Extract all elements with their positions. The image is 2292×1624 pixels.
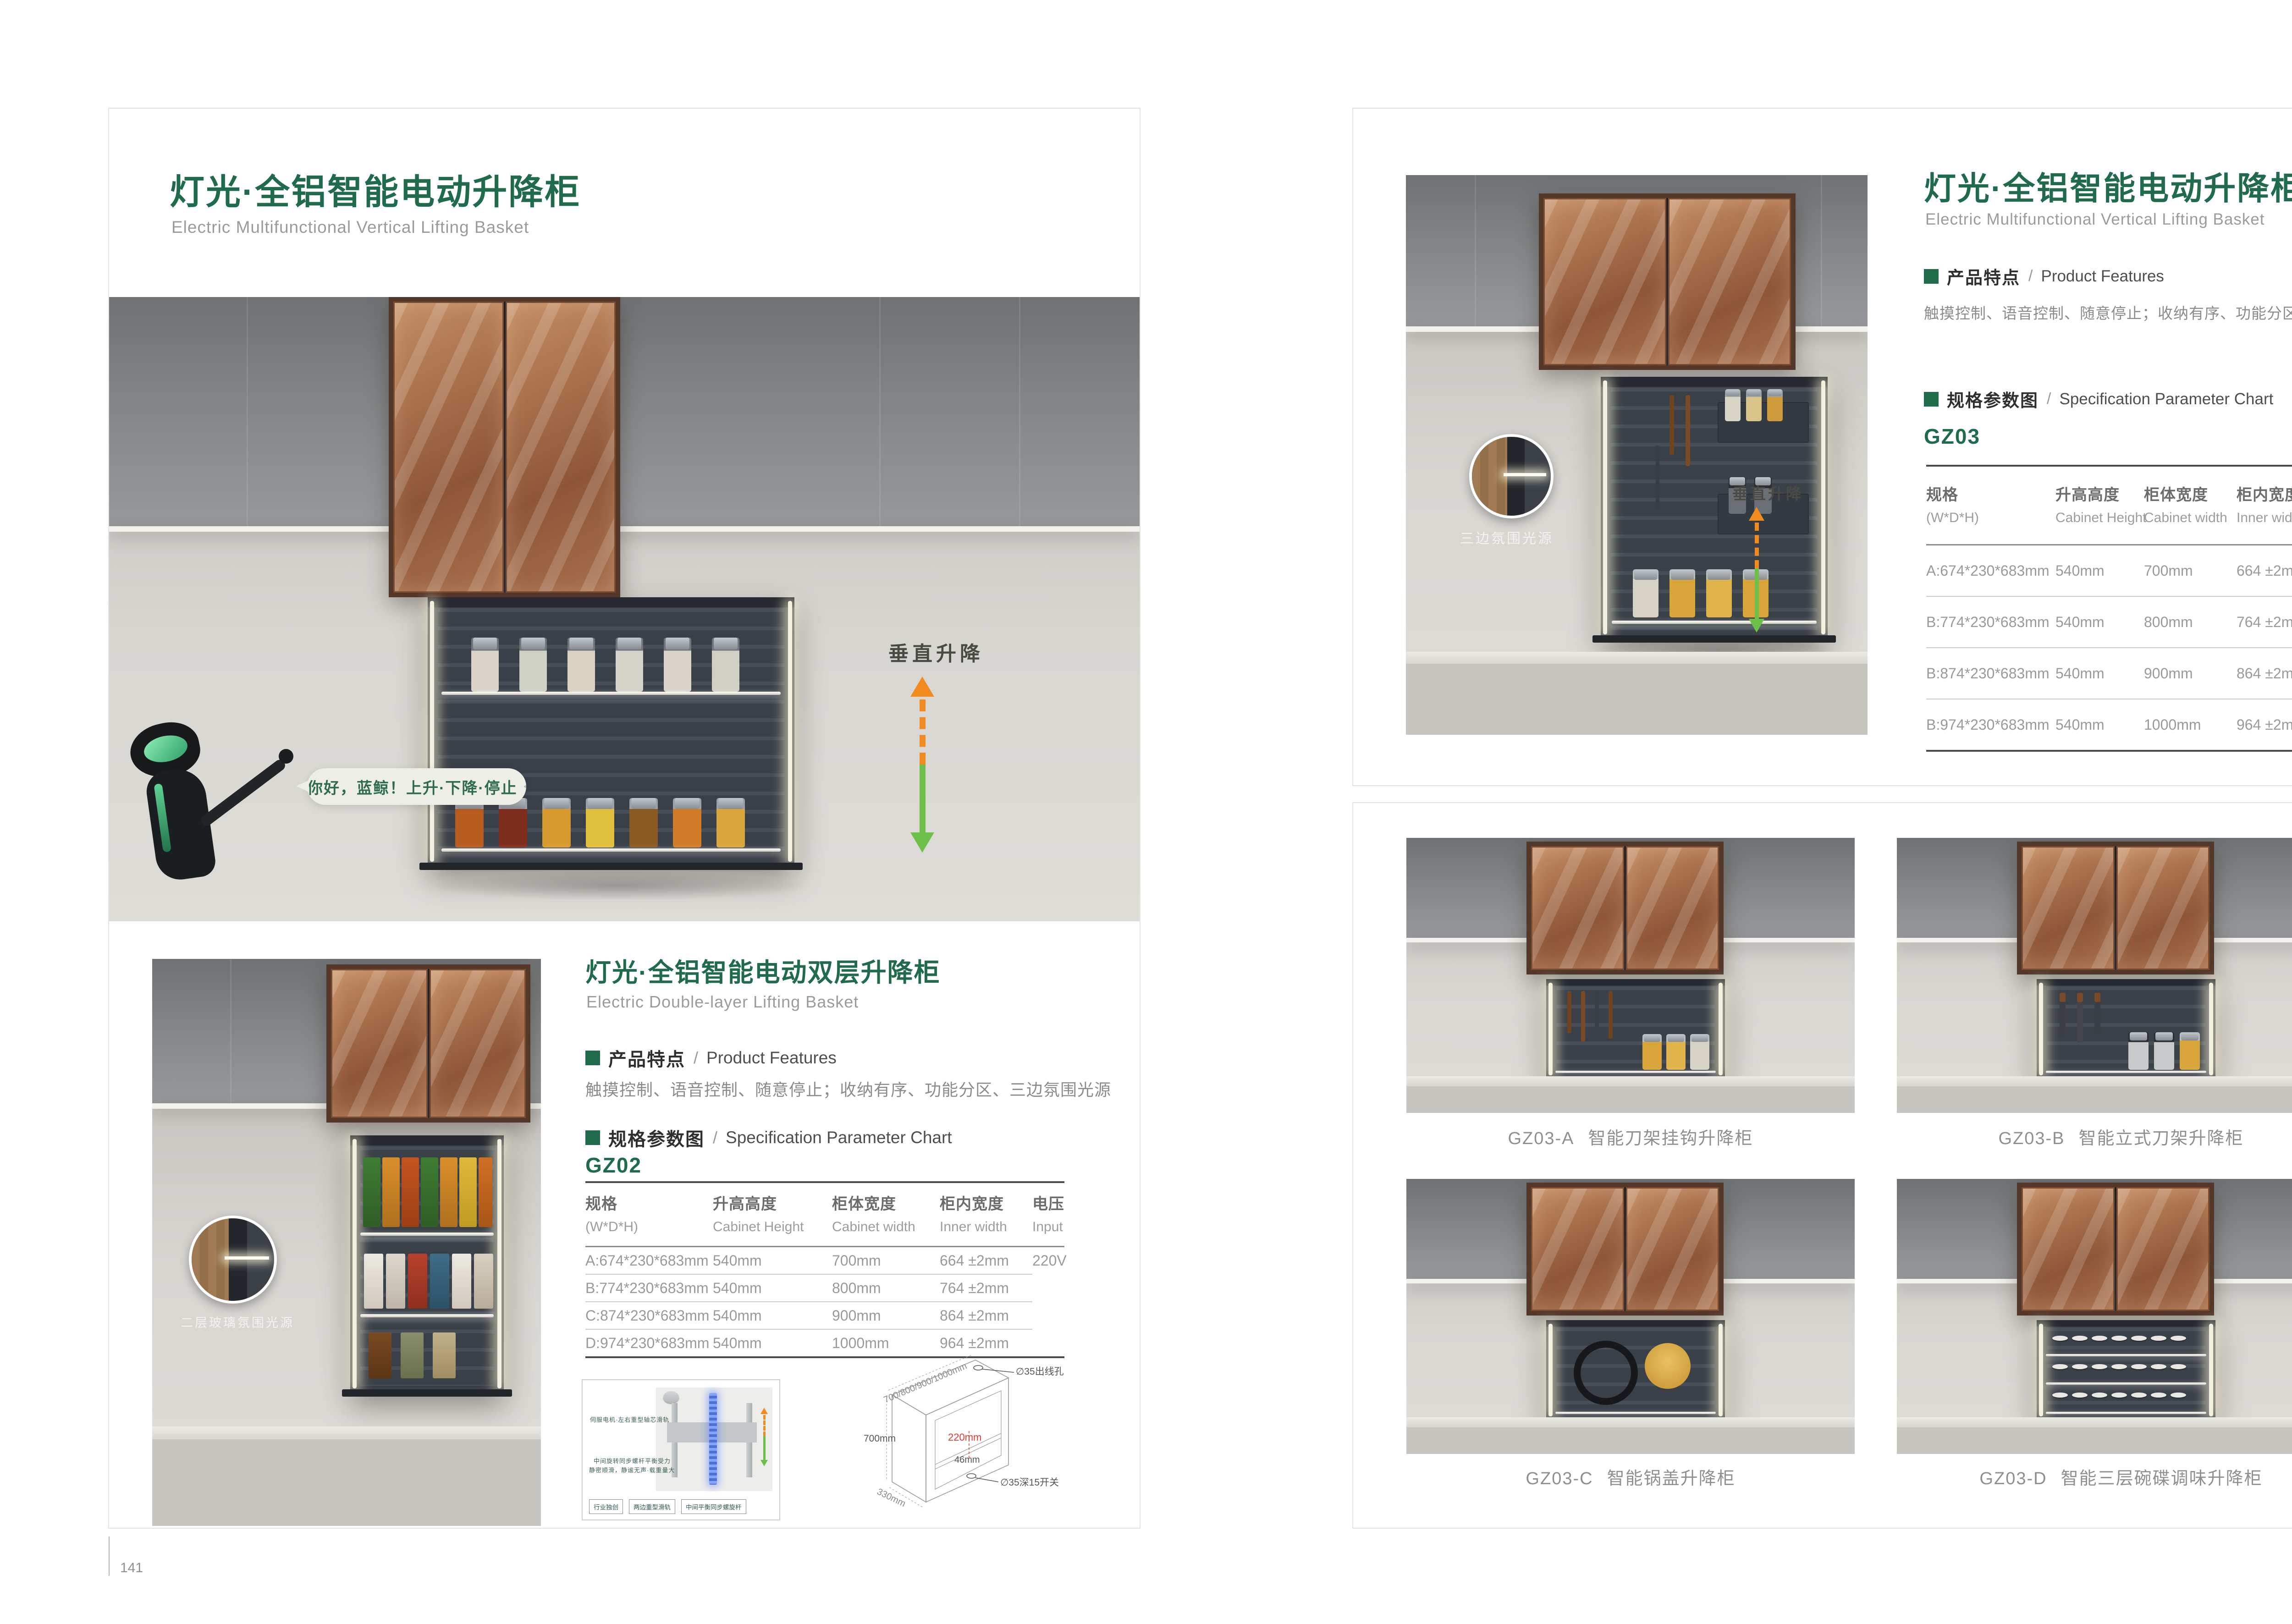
glass-door-right bbox=[2116, 1187, 2209, 1311]
spice-jar bbox=[1725, 389, 1741, 421]
lifting-rack bbox=[2037, 1320, 2215, 1420]
robot-visor bbox=[142, 732, 190, 766]
dim-width-range: 700/800/900/1000mm bbox=[882, 1361, 969, 1405]
juice-carton bbox=[479, 1157, 492, 1227]
cell: 664 ±2mm bbox=[2237, 545, 2292, 596]
rack-top-rail bbox=[2037, 979, 2215, 985]
juice-carton bbox=[363, 1157, 380, 1227]
table-bottom-border bbox=[1926, 750, 2292, 752]
model-code: GZ03 bbox=[1924, 424, 1980, 449]
photo-callout-label: 二层玻璃氛围光源 bbox=[181, 1313, 294, 1331]
light-strip-left bbox=[1603, 380, 1607, 634]
mechanism-note-1: 伺服电机·左右重型轴芯滑轨 bbox=[590, 1415, 669, 1424]
arrow-dashed-line bbox=[1755, 523, 1759, 568]
rack-base bbox=[1592, 635, 1836, 643]
lifting-rack bbox=[428, 597, 794, 865]
bronze-glass-cabinet bbox=[1526, 842, 1724, 974]
tag: 行业独创 bbox=[589, 1499, 623, 1514]
cell: 800mm bbox=[832, 1275, 940, 1301]
bronze-glass-cabinet bbox=[1526, 1183, 1724, 1316]
countertop bbox=[1897, 1076, 2292, 1113]
product-image-gz03d bbox=[1897, 1179, 2292, 1454]
light-strip-left bbox=[2039, 983, 2043, 1075]
pasta-jar bbox=[1669, 569, 1695, 617]
col-header: 升高高度Cabinet Height bbox=[713, 1183, 832, 1246]
cabinet-seam bbox=[230, 959, 231, 1103]
hanging-knife bbox=[1656, 446, 1659, 510]
glass-shelf bbox=[2046, 1412, 2206, 1414]
right-page-top: 三边氛围光源 垂直升降 灯光·全铝智能电动升降柜 Electric Multif… bbox=[1352, 108, 2292, 786]
glass-door-left bbox=[2022, 1187, 2115, 1311]
spec-heading-zh: 规格参数图 bbox=[1947, 386, 2039, 412]
light-strip-right bbox=[2209, 1324, 2213, 1416]
lift-arrows bbox=[910, 677, 934, 853]
cell: 700mm bbox=[832, 1247, 940, 1274]
milk-carton bbox=[452, 1254, 471, 1309]
light-strip-right bbox=[1821, 380, 1825, 634]
col-header: 柜体宽度Cabinet width bbox=[832, 1183, 940, 1246]
mechanism-note-2a: 中间旋转同步螺杆平衡受力 bbox=[594, 1456, 671, 1465]
robot-hand bbox=[279, 749, 293, 764]
cabinet-seam bbox=[247, 297, 248, 526]
spec-heading: 规格参数图 / Specification Parameter Chart bbox=[1924, 386, 2273, 412]
light-strip-right bbox=[497, 1139, 501, 1388]
dim-switch-hole: ∅35深15开关 bbox=[1000, 1477, 1059, 1488]
base-cabinets bbox=[1897, 1427, 2292, 1454]
arrow-solid-line bbox=[920, 765, 926, 832]
steel-canister bbox=[2154, 1032, 2174, 1070]
col-header: 柜内宽度Inner width bbox=[2237, 467, 2292, 544]
top-plate bbox=[663, 1391, 679, 1403]
sound-waves-icon bbox=[524, 777, 526, 796]
base-cabinets bbox=[1406, 1427, 1855, 1454]
ingredient-jar bbox=[499, 798, 527, 848]
glass-shelf bbox=[441, 692, 781, 695]
tag: 两边重型滑轨 bbox=[629, 1499, 675, 1514]
counter-surface bbox=[152, 1426, 541, 1439]
mini-lift-arrows bbox=[760, 1408, 768, 1466]
vertical-lift-label: 垂直升降 bbox=[888, 637, 984, 666]
detail-magnifier-circle bbox=[189, 1216, 277, 1304]
glass-shelf bbox=[360, 1233, 494, 1236]
slash: / bbox=[2028, 267, 2033, 285]
cell: 864 ±2mm bbox=[940, 1302, 1032, 1329]
ingredient-jar bbox=[455, 798, 484, 848]
juice-carton bbox=[440, 1157, 457, 1227]
spec-heading-en: Specification Parameter Chart bbox=[726, 1128, 952, 1147]
bronze-glass-cabinet bbox=[2017, 842, 2214, 974]
hero-image: 三边氛围光源 垂直升降 bbox=[1406, 175, 1868, 735]
page-subtitle: Electric Multifunctional Vertical Liftin… bbox=[1925, 210, 2265, 229]
rack-top-rail bbox=[350, 1135, 504, 1145]
model-code: GZ02 bbox=[585, 1153, 642, 1178]
product-code: GZ03-D bbox=[1979, 1469, 2047, 1488]
cell: 800mm bbox=[2144, 597, 2237, 647]
cell: 540mm bbox=[2055, 597, 2144, 647]
glass-door-left bbox=[1531, 846, 1624, 970]
double-layer-product-photo: 二层玻璃氛围光源 bbox=[152, 959, 541, 1526]
cell: C:874*230*683mm bbox=[585, 1302, 713, 1329]
arrow-down-icon bbox=[910, 832, 934, 853]
knife-blade bbox=[2060, 1002, 2066, 1038]
dim-offset: 46mm bbox=[954, 1455, 980, 1465]
light-strip-right bbox=[788, 601, 792, 862]
slash: / bbox=[694, 1048, 698, 1068]
ingredient-jar bbox=[629, 798, 658, 848]
arrow-up-icon bbox=[910, 677, 934, 697]
wood-panel-detail bbox=[1472, 437, 1507, 516]
section-title: 灯光·全铝智能电动双层升降柜 bbox=[585, 952, 941, 989]
pasta-jar bbox=[1706, 569, 1732, 617]
light-strip-right bbox=[2209, 983, 2213, 1075]
cell: B:774*230*683mm bbox=[1926, 597, 2055, 647]
light-strip-right bbox=[1719, 983, 1723, 1075]
voice-speech-bubble: 你好，蓝鲸！上升·下降·停止 bbox=[307, 768, 526, 805]
page-title: 灯光·全铝智能电动升降柜 bbox=[1924, 163, 2292, 209]
cell: 864 ±2mm bbox=[2237, 648, 2292, 699]
ingredient-jar bbox=[542, 798, 571, 848]
ingredient-jar bbox=[586, 798, 614, 848]
spec-heading-en: Specification Parameter Chart bbox=[2059, 390, 2273, 408]
features-heading-en: Product Features bbox=[706, 1048, 837, 1068]
arrow-dashed-line bbox=[920, 699, 926, 765]
mechanism-note-2b: 静密顺滑，静谧无声·载重量大 bbox=[589, 1465, 675, 1474]
spec-table-gz03: 规格(W*D*H) 升高高度Cabinet Height 柜体宽度Cabinet… bbox=[1926, 465, 2292, 752]
glass-door-right bbox=[430, 969, 526, 1118]
dim-top-hole: ∅35出线孔 bbox=[1016, 1366, 1064, 1377]
cell: 700mm bbox=[2144, 545, 2237, 596]
spec-table-gz02: 规格(W*D*H) 升高高度Cabinet Height 柜体宽度Cabinet… bbox=[585, 1181, 1064, 1358]
product-caption-gz03b: GZ03-B智能立式刀架升降柜 bbox=[1897, 1124, 2292, 1149]
counter-surface bbox=[1897, 1076, 2292, 1086]
knife-handle bbox=[2094, 993, 2100, 1002]
left-page: 灯光·全铝智能电动升降柜 Electric Multifunctional Ve… bbox=[108, 108, 1140, 1529]
slash: / bbox=[2047, 390, 2051, 408]
col-header: 柜体宽度Cabinet width bbox=[2144, 467, 2237, 544]
product-name: 智能立式刀架升降柜 bbox=[2079, 1129, 2244, 1148]
rack-top-rail bbox=[1601, 377, 1828, 387]
features-heading-zh: 产品特点 bbox=[1947, 264, 2020, 289]
col-header: 电压Input bbox=[1032, 1183, 1064, 1246]
glass-door-left bbox=[393, 302, 504, 593]
glass-shelf bbox=[1612, 621, 1817, 624]
base-cabinets bbox=[152, 1439, 541, 1526]
countertop bbox=[1897, 1417, 2292, 1454]
robot-accent bbox=[154, 783, 171, 853]
rack-top-rail bbox=[1546, 979, 1725, 985]
product-code: GZ03-B bbox=[1998, 1129, 2065, 1148]
right-page-bottom: GZ03-A智能刀架挂钩升降柜 bbox=[1352, 802, 2292, 1529]
glass-door-right bbox=[1626, 1187, 1719, 1311]
glass-door-right bbox=[2116, 846, 2209, 970]
rack-top-rail bbox=[428, 597, 794, 607]
spec-heading: 规格参数图 / Specification Parameter Chart bbox=[585, 1124, 952, 1151]
green-square-bullet bbox=[1924, 392, 1939, 407]
cabinet-seam bbox=[1821, 175, 1822, 326]
mechanism-tags: 行业独创 两边重型滑轨 中间平衡同步螺旋杆 bbox=[589, 1499, 746, 1514]
arrow-up-icon bbox=[760, 1408, 768, 1414]
product-code: GZ03-C bbox=[1526, 1469, 1593, 1488]
features-heading-en: Product Features bbox=[2041, 267, 2164, 286]
hanging-knife bbox=[1595, 991, 1599, 1028]
glass-shelf bbox=[2046, 1382, 2206, 1385]
spice-jar bbox=[712, 638, 739, 692]
pasta-jar bbox=[1633, 569, 1658, 617]
countertop bbox=[1406, 1417, 1855, 1454]
hanging-utensil bbox=[1581, 991, 1585, 1041]
bottle bbox=[433, 1332, 456, 1378]
light-strip-detail bbox=[225, 1256, 269, 1260]
glass-door-left bbox=[1531, 1187, 1624, 1311]
section-subtitle: Electric Double-layer Lifting Basket bbox=[586, 992, 859, 1012]
cell bbox=[1032, 1275, 1064, 1301]
cell: 540mm bbox=[713, 1275, 832, 1301]
plate-row bbox=[2052, 1393, 2186, 1398]
glass-shelf bbox=[2046, 1354, 2206, 1356]
lifting-rack bbox=[1601, 377, 1828, 638]
milk-carton bbox=[364, 1254, 383, 1309]
tag: 中间平衡同步螺旋杆 bbox=[681, 1499, 746, 1514]
col-header: 规格(W*D*H) bbox=[585, 1183, 713, 1246]
cabinet-seam bbox=[879, 297, 881, 526]
glass-shelf bbox=[1555, 1412, 1716, 1414]
juice-carton bbox=[402, 1157, 419, 1227]
product-image-gz03c bbox=[1406, 1179, 1855, 1454]
page-title: 灯光·全铝智能电动升降柜 bbox=[170, 164, 581, 214]
bottle bbox=[369, 1332, 391, 1378]
pasta-jar bbox=[2180, 1032, 2200, 1070]
double-layer-rack bbox=[350, 1135, 504, 1392]
countertop bbox=[152, 1426, 541, 1526]
plate-row bbox=[2052, 1364, 2186, 1369]
hero-image: 你好，蓝鲸！上升·下降·停止 垂直升降 bbox=[109, 297, 1140, 921]
plate-row bbox=[2052, 1336, 2186, 1341]
robot-arm bbox=[198, 758, 287, 828]
upper-cabinets bbox=[109, 297, 1140, 526]
lifting-rack bbox=[1546, 1320, 1725, 1420]
base-cabinets bbox=[1406, 1086, 1855, 1113]
product-name: 智能锅盖升降柜 bbox=[1607, 1469, 1736, 1488]
dim-inner: 220mm bbox=[948, 1431, 981, 1443]
features-text: 触摸控制、语音控制、随意停止；收纳有序、功能分区、三边氛围光源 bbox=[585, 1077, 1111, 1101]
detail-magnifier-circle bbox=[1469, 434, 1554, 518]
bronze-glass-cabinet bbox=[1539, 193, 1796, 370]
cell: 764 ±2mm bbox=[2237, 597, 2292, 647]
bronze-glass-cabinet bbox=[326, 964, 530, 1123]
spice-jar bbox=[616, 638, 643, 692]
cell: 964 ±2mm bbox=[2237, 699, 2292, 750]
light-strip-left bbox=[1548, 983, 1553, 1075]
product-caption-gz03c: GZ03-C智能锅盖升降柜 bbox=[1406, 1464, 1855, 1489]
counter-surface bbox=[1406, 1076, 1855, 1086]
cell: A:674*230*683mm bbox=[1926, 545, 2055, 596]
knife-blade bbox=[2094, 1002, 2100, 1034]
col-header: 规格(W*D*H) bbox=[1926, 467, 2055, 544]
spice-jar bbox=[519, 638, 547, 692]
light-strip-left bbox=[353, 1139, 357, 1388]
light-strip-right bbox=[1719, 1324, 1723, 1416]
product-name: 智能刀架挂钩升降柜 bbox=[1588, 1129, 1753, 1148]
juice-carton bbox=[382, 1157, 400, 1227]
light-strip-left bbox=[1548, 1324, 1553, 1416]
spice-jar bbox=[471, 638, 499, 692]
glass-door-right bbox=[1626, 846, 1719, 970]
ingredient-jar bbox=[673, 798, 701, 848]
lift-arrows bbox=[1749, 507, 1764, 633]
glass-shelf bbox=[2046, 1071, 2206, 1073]
cell: B:974*230*683mm bbox=[1926, 699, 2055, 750]
rack-shadow bbox=[412, 870, 824, 902]
juice-carton bbox=[421, 1157, 438, 1227]
product-caption-gz03d: GZ03-D智能三层碗碟调味升降柜 bbox=[1897, 1464, 2292, 1489]
cell: 540mm bbox=[2055, 648, 2144, 699]
bronze-glass-cabinet bbox=[2017, 1183, 2214, 1316]
wood-panel-detail bbox=[192, 1218, 229, 1301]
col-header: 柜内宽度Inner width bbox=[940, 1183, 1032, 1246]
glass-shelf bbox=[441, 848, 781, 852]
product-image-gz03a bbox=[1406, 838, 1855, 1113]
arrow-dashed-line bbox=[763, 1415, 766, 1436]
cabinet-seam bbox=[1475, 175, 1476, 326]
glass-door-left bbox=[331, 969, 428, 1118]
knife-handle bbox=[2077, 993, 2083, 1002]
green-square-bullet bbox=[585, 1051, 600, 1065]
countertop bbox=[1406, 1076, 1855, 1113]
bronze-glass-cabinet bbox=[389, 297, 620, 597]
synchronous-screw bbox=[709, 1393, 717, 1485]
hero-callout-label: 三边氛围光源 bbox=[1460, 527, 1554, 547]
glass-shelf bbox=[1555, 1071, 1716, 1073]
arrow-up-icon bbox=[1749, 507, 1764, 521]
spice-jar bbox=[1746, 389, 1762, 421]
light-strip-detail bbox=[1504, 473, 1546, 476]
spice-bin bbox=[1718, 402, 1809, 443]
rack-top-rail bbox=[2037, 1320, 2215, 1327]
rack-base bbox=[419, 863, 803, 870]
dim-height: 700mm bbox=[864, 1433, 896, 1444]
milk-carton bbox=[430, 1254, 449, 1309]
cell: A:674*230*683mm bbox=[585, 1247, 713, 1274]
col-header: 升高高度Cabinet Height bbox=[2055, 467, 2144, 544]
vertical-lift-label: 垂直升降 bbox=[1732, 481, 1804, 504]
product-image-gz03b bbox=[1897, 838, 2292, 1113]
pasta-jar bbox=[1642, 1034, 1662, 1070]
hanging-utensil bbox=[1567, 991, 1571, 1033]
cell: 540mm bbox=[713, 1330, 832, 1356]
counter-surface bbox=[1897, 1417, 2292, 1427]
under-cabinet-light bbox=[109, 526, 1140, 532]
light-strip-left bbox=[2039, 1324, 2043, 1416]
rack-top-rail bbox=[1546, 1320, 1725, 1327]
glass-door-left bbox=[1543, 198, 1666, 365]
rack-base bbox=[342, 1389, 512, 1397]
features-heading-zh: 产品特点 bbox=[608, 1045, 685, 1071]
spice-jar bbox=[1767, 389, 1783, 421]
slash: / bbox=[713, 1128, 717, 1147]
cell: 664 ±2mm bbox=[940, 1247, 1032, 1274]
gold-pan-lid bbox=[1645, 1343, 1691, 1389]
voice-command-text: 你好，蓝鲸！上升·下降·停止 bbox=[307, 776, 518, 798]
cell: B:874*230*683mm bbox=[1926, 648, 2055, 699]
hanging-utensil bbox=[1609, 991, 1613, 1039]
hanging-spatula bbox=[1669, 395, 1674, 455]
lifting-rack bbox=[1546, 979, 1725, 1079]
features-heading: 产品特点 / Product Features bbox=[585, 1045, 837, 1071]
knife-blade bbox=[2077, 1002, 2083, 1042]
base-cabinets bbox=[1897, 1086, 2292, 1113]
milk-carton bbox=[408, 1254, 427, 1309]
cell: 540mm bbox=[2055, 699, 2144, 750]
bottle bbox=[401, 1332, 424, 1378]
juice-carton bbox=[459, 1157, 477, 1227]
dimension-diagram: 700/800/900/1000mm ∅35出线孔 700mm 220mm 46… bbox=[863, 1346, 1078, 1526]
cell: 900mm bbox=[832, 1302, 940, 1329]
arrow-down-icon bbox=[1749, 619, 1764, 633]
green-square-bullet bbox=[585, 1130, 600, 1145]
features-text: 触摸控制、语音控制、随意停止；收纳有序、功能分区、三边氛围光源 bbox=[1924, 301, 2292, 323]
product-name: 智能三层碗碟调味升降柜 bbox=[2061, 1469, 2263, 1488]
light-strip-left bbox=[430, 601, 434, 862]
arrow-solid-line bbox=[1755, 568, 1759, 619]
product-caption-gz03a: GZ03-A智能刀架挂钩升降柜 bbox=[1406, 1124, 1855, 1149]
cell: 764 ±2mm bbox=[940, 1275, 1032, 1301]
cell: 540mm bbox=[713, 1247, 832, 1274]
page-number-left: 141 bbox=[120, 1560, 143, 1576]
counter-surface bbox=[1406, 1417, 1855, 1427]
glass-door-right bbox=[1668, 198, 1791, 365]
catalog-spread: 灯光·全铝智能电动升降柜 Electric Multifunctional Ve… bbox=[0, 0, 2292, 1624]
features-heading: 产品特点 / Product Features bbox=[1924, 264, 2164, 289]
spec-heading-zh: 规格参数图 bbox=[608, 1124, 705, 1151]
glass-door-left bbox=[2022, 846, 2115, 970]
mechanism-diagram: 伺服电机·左右重型轴芯滑轨 中间旋转同步螺杆平衡受力 静密顺滑，静谧无声·载重量… bbox=[582, 1379, 780, 1520]
page-number-divider bbox=[109, 1536, 110, 1576]
glass-door-right bbox=[506, 302, 616, 593]
mechanism-photo bbox=[656, 1387, 772, 1491]
knife-handle bbox=[2060, 993, 2066, 1002]
cell: 900mm bbox=[2144, 648, 2237, 699]
pasta-jar bbox=[1666, 1034, 1686, 1070]
cell: 1000mm bbox=[2144, 699, 2237, 750]
cell bbox=[1032, 1302, 1064, 1329]
black-pan-lid bbox=[1574, 1341, 1638, 1405]
spice-jar bbox=[664, 638, 691, 692]
robot-illustration bbox=[127, 715, 302, 921]
product-code: GZ03-A bbox=[1508, 1129, 1574, 1148]
spice-jar bbox=[567, 638, 595, 692]
pasta-jar bbox=[1690, 1034, 1709, 1070]
base-cabinets bbox=[1406, 664, 1868, 735]
countertop bbox=[1406, 652, 1868, 735]
lifting-rack bbox=[2037, 979, 2215, 1079]
dim-depth: 330mm bbox=[875, 1486, 907, 1509]
cell: D:974*230*683mm bbox=[585, 1330, 713, 1356]
glass-shelf bbox=[360, 1314, 494, 1317]
milk-carton bbox=[386, 1254, 405, 1309]
hanging-spatula bbox=[1686, 395, 1690, 466]
arrow-down-icon bbox=[760, 1460, 768, 1466]
ingredient-jar bbox=[716, 798, 745, 848]
green-square-bullet bbox=[1924, 269, 1939, 284]
cell: B:774*230*683mm bbox=[585, 1275, 713, 1301]
frame-detail bbox=[229, 1218, 247, 1301]
page-subtitle: Electric Multifunctional Vertical Liftin… bbox=[171, 218, 529, 237]
cell: 540mm bbox=[2055, 545, 2144, 596]
cell: 220V bbox=[1032, 1247, 1064, 1274]
counter-surface bbox=[1406, 652, 1868, 664]
cell: 540mm bbox=[713, 1302, 832, 1329]
milk-carton bbox=[474, 1254, 493, 1309]
